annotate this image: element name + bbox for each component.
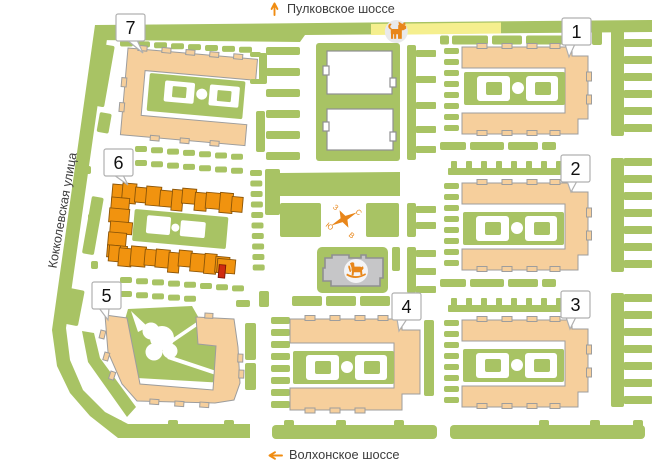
svg-text:2: 2 [570, 159, 580, 179]
svg-text:7: 7 [125, 18, 135, 38]
svg-text:5: 5 [101, 286, 111, 306]
svg-text:3: 3 [570, 295, 580, 315]
svg-text:4: 4 [401, 297, 411, 317]
svg-text:Пулковское шоссе: Пулковское шоссе [287, 2, 395, 16]
svg-text:1: 1 [571, 22, 581, 42]
svg-text:6: 6 [113, 153, 123, 173]
svg-text:Волхонское шоссе: Волхонское шоссе [289, 447, 400, 461]
